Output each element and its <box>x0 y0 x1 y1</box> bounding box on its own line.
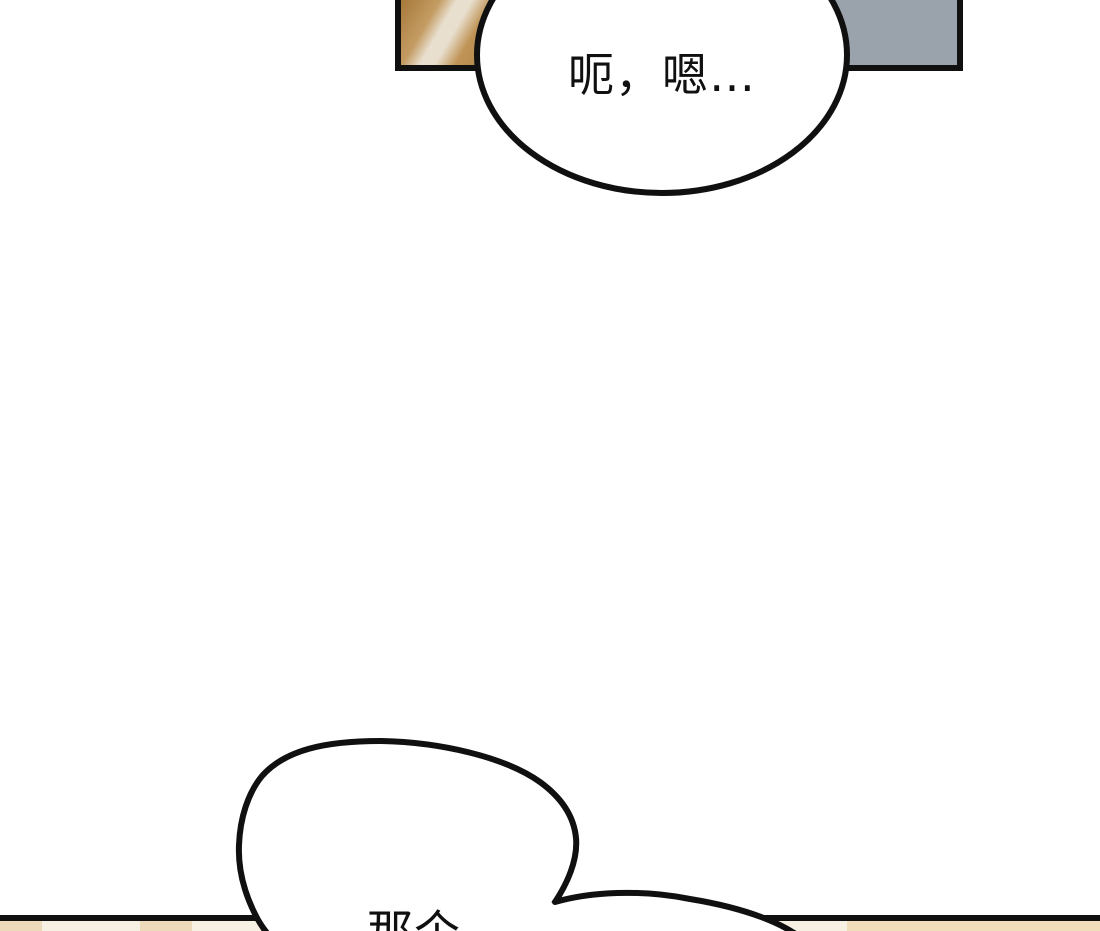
comic-page: 呃，嗯… …那个， 凯…斯? <box>0 0 1100 931</box>
floor-plank-patch <box>0 921 42 931</box>
floor-plank-patch <box>140 921 192 931</box>
comic-artwork <box>0 0 1100 931</box>
speech-text-bottom: …那个， 凯…斯? <box>242 802 586 931</box>
speech-text-top: 呃，嗯… <box>477 50 847 100</box>
speech-text-bottom-line1: …那个， <box>242 906 586 931</box>
floor-plank-patch <box>847 921 1100 931</box>
